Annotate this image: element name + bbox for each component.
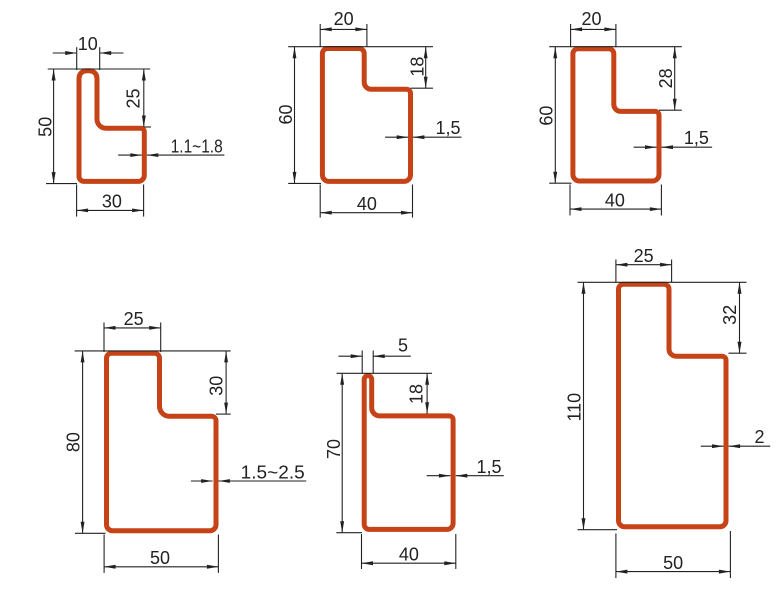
svg-text:20: 20 — [334, 9, 354, 29]
svg-text:50: 50 — [35, 117, 55, 137]
svg-text:40: 40 — [605, 190, 625, 210]
svg-text:1.5~2.5: 1.5~2.5 — [241, 463, 305, 483]
svg-text:32: 32 — [720, 305, 740, 325]
svg-text:50: 50 — [663, 553, 683, 573]
svg-text:5: 5 — [398, 336, 408, 356]
svg-text:2: 2 — [754, 427, 764, 447]
svg-text:40: 40 — [399, 544, 419, 564]
svg-text:18: 18 — [407, 57, 427, 77]
svg-text:110: 110 — [564, 393, 584, 422]
svg-text:50: 50 — [150, 548, 170, 568]
svg-text:60: 60 — [537, 106, 557, 126]
svg-text:28: 28 — [656, 68, 676, 88]
svg-text:30: 30 — [207, 376, 227, 396]
svg-text:1,5: 1,5 — [435, 118, 460, 138]
svg-text:20: 20 — [581, 9, 601, 29]
svg-text:1,5: 1,5 — [476, 457, 501, 477]
svg-text:18: 18 — [407, 384, 427, 404]
svg-text:30: 30 — [102, 192, 122, 212]
svg-text:1.1~1.8: 1.1~1.8 — [171, 137, 223, 157]
svg-text:40: 40 — [357, 194, 377, 214]
svg-text:80: 80 — [63, 432, 83, 452]
svg-text:1,5: 1,5 — [684, 128, 709, 148]
svg-text:60: 60 — [276, 104, 296, 124]
svg-text:70: 70 — [324, 439, 344, 459]
svg-text:25: 25 — [124, 309, 144, 329]
svg-text:25: 25 — [634, 246, 654, 266]
svg-text:25: 25 — [123, 88, 143, 108]
svg-text:10: 10 — [78, 34, 98, 54]
